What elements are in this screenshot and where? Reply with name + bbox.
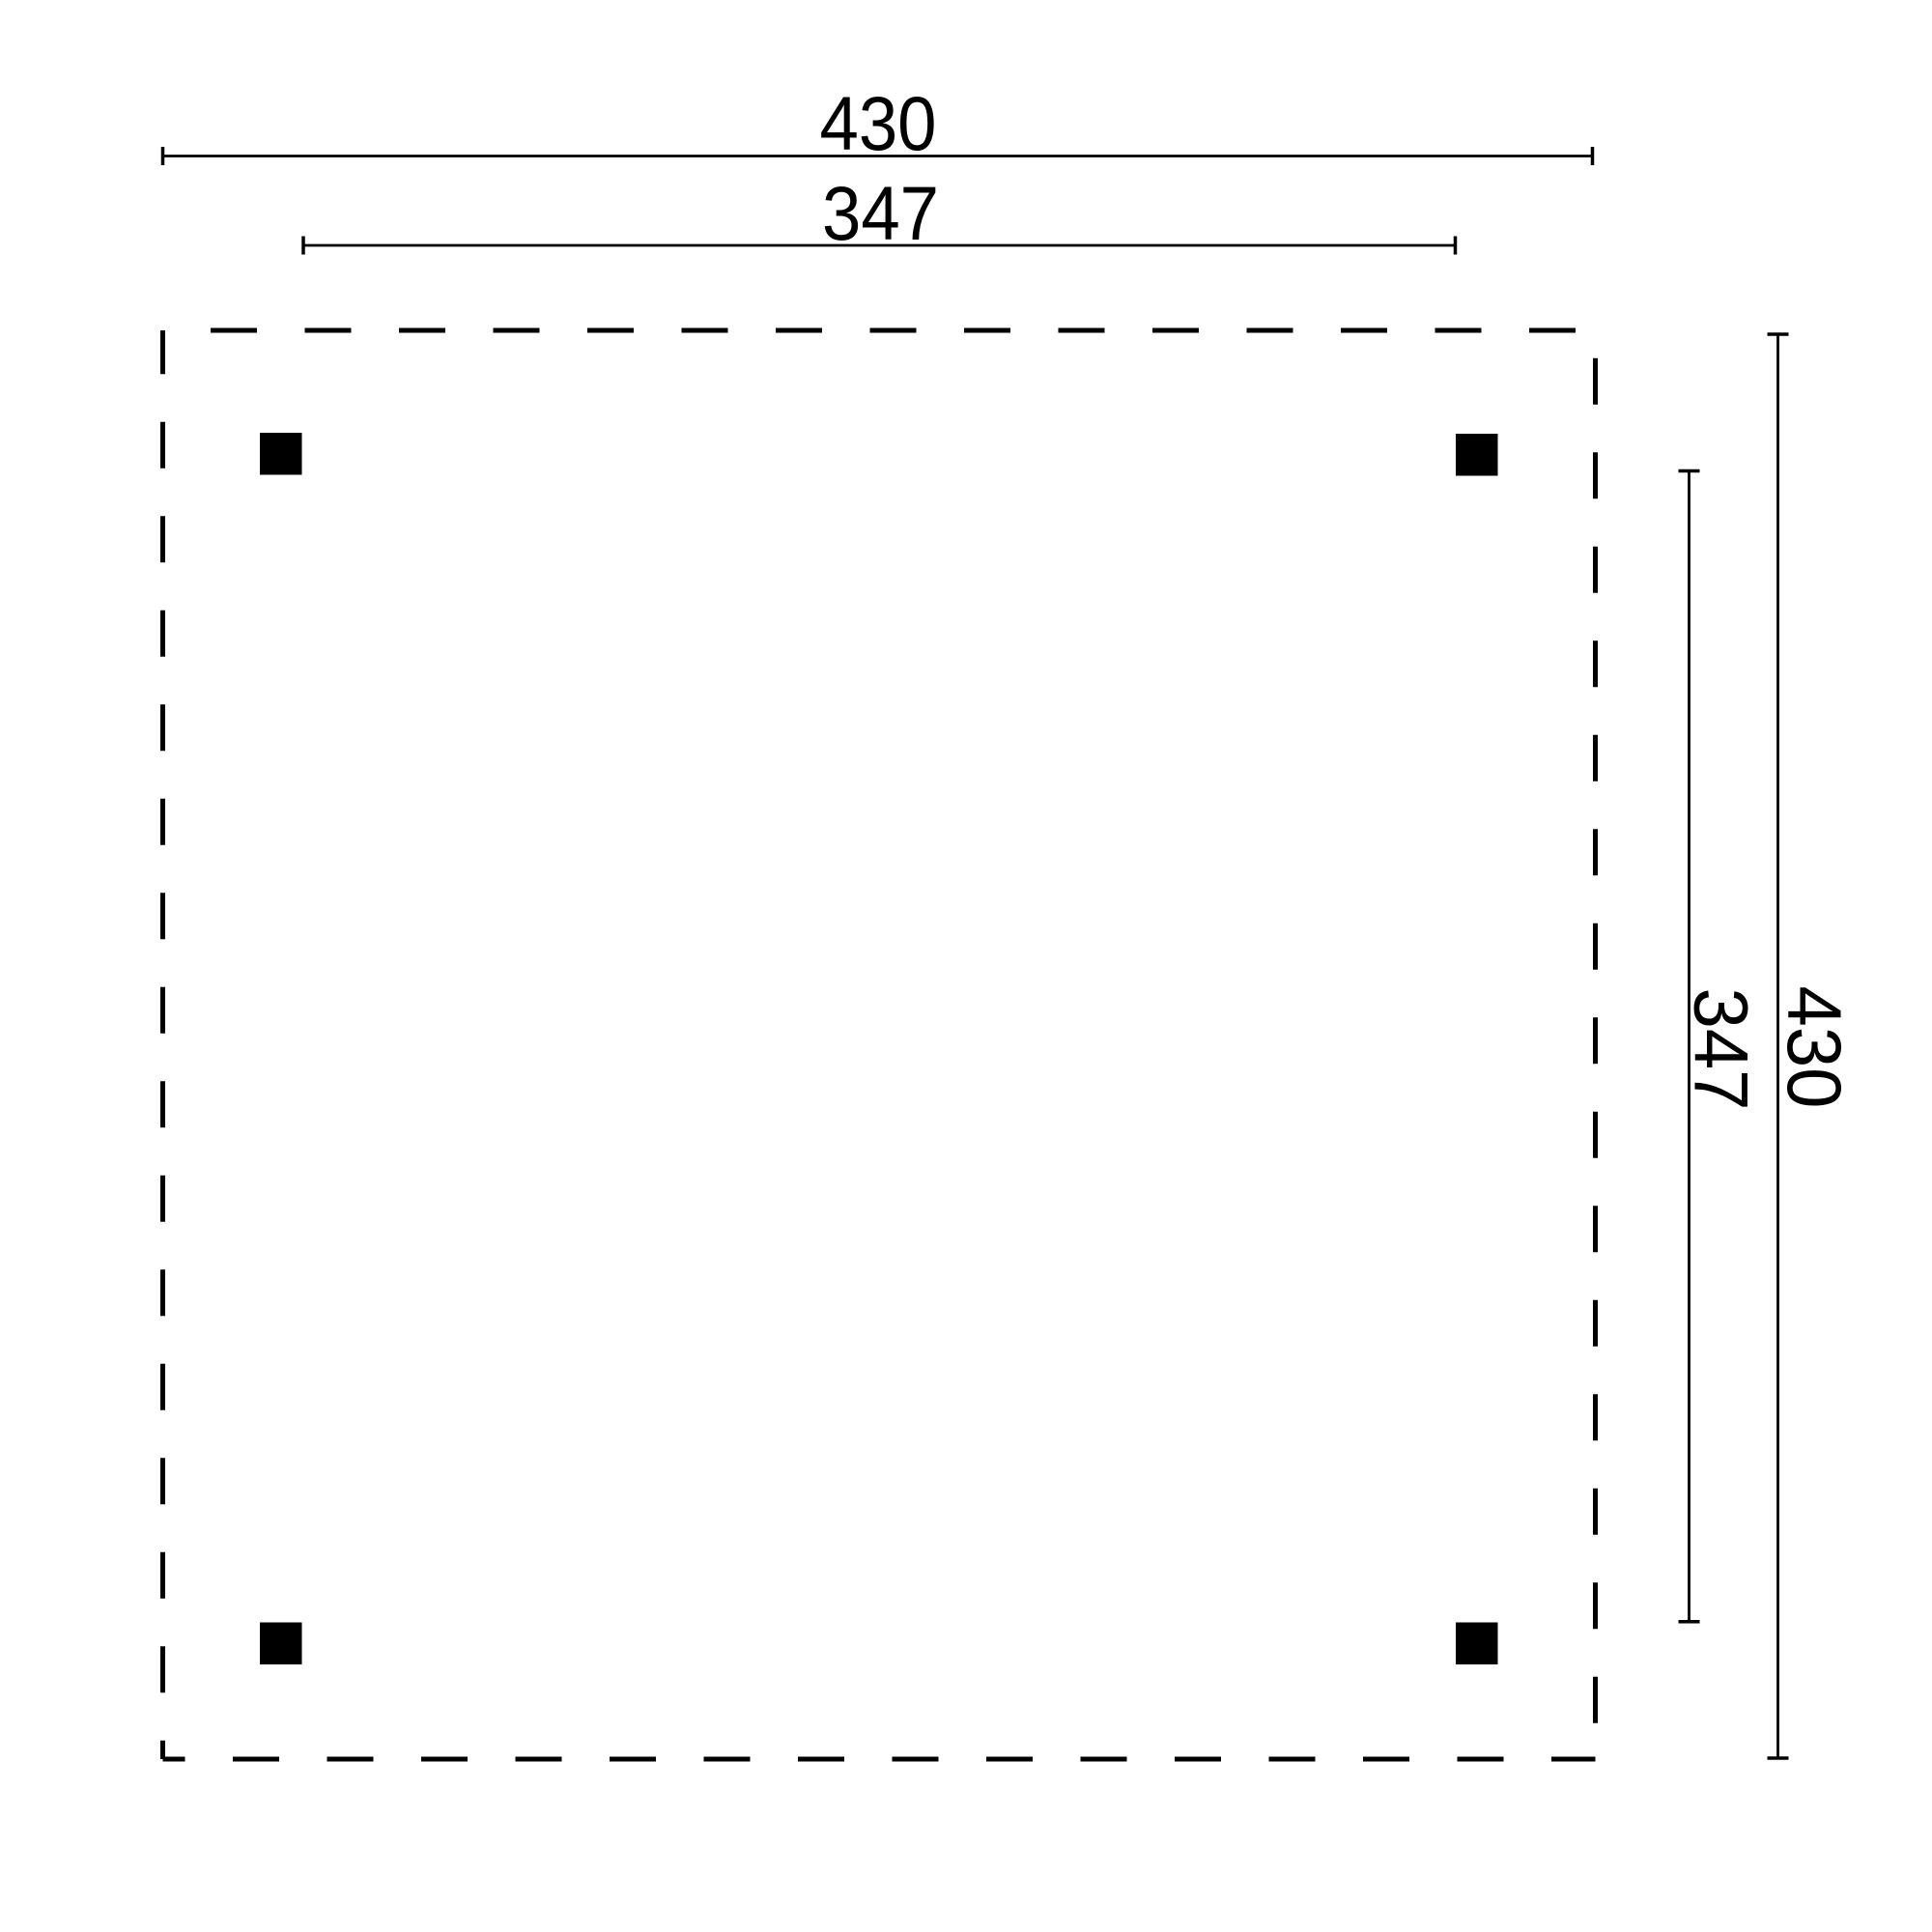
svg-text:430: 430	[1772, 986, 1858, 1109]
svg-text:347: 347	[1679, 988, 1765, 1111]
svg-text:347: 347	[822, 170, 939, 256]
svg-text:430: 430	[820, 80, 937, 166]
